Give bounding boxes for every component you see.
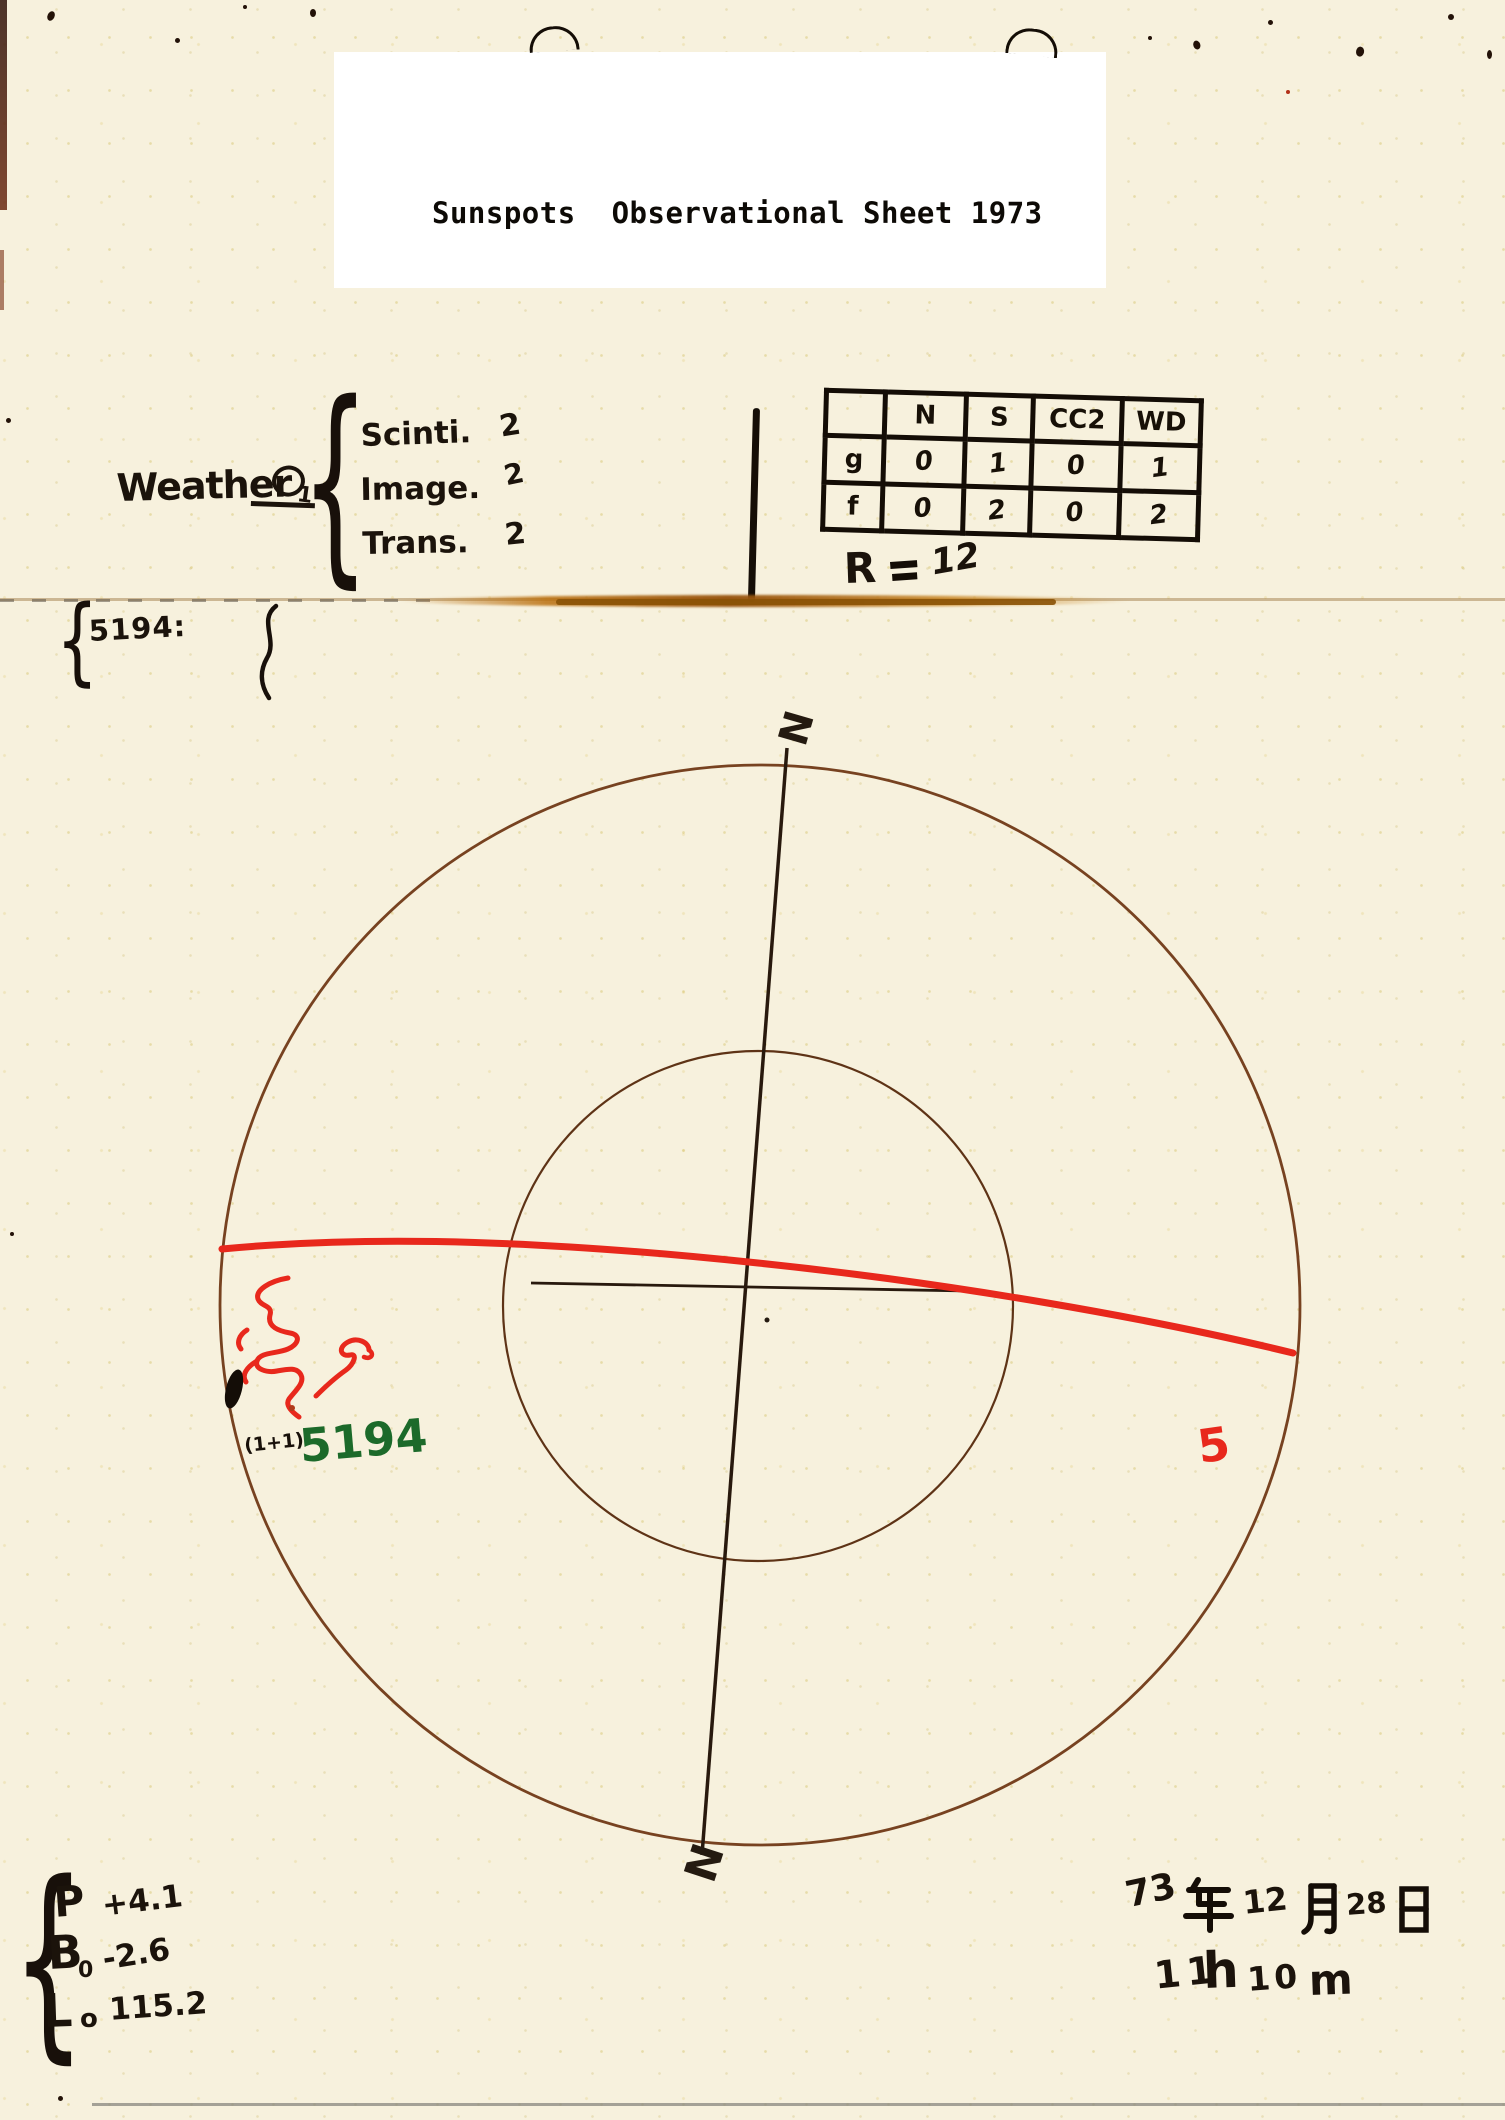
date-month: 12 [1241, 1879, 1289, 1921]
time-minute-unit: m [1308, 1954, 1353, 2004]
small-red-dot [289, 1405, 295, 1411]
horizontal-axis-line [531, 1283, 969, 1291]
kanji-year-icon [1182, 1874, 1234, 1934]
b0-subscript: 0 [78, 1958, 93, 1983]
sunspot-sketch-left [257, 1278, 302, 1417]
p-label: P [52, 1876, 86, 1927]
center-dot [765, 1318, 770, 1323]
l0-value: 115.2 [108, 1985, 208, 2028]
sunspot-sketch-right [316, 1340, 369, 1396]
polar-axis-line [702, 748, 787, 1855]
sunspot-sketch-loop [364, 1350, 372, 1358]
group-count-label: (1+1) [243, 1429, 305, 1457]
north-label: N [770, 706, 823, 751]
group-number-label: 5194 [297, 1408, 429, 1473]
date-day: 28 [1345, 1885, 1388, 1922]
sheet-page: Sunspots Observational Sheet 1973 Weathe… [0, 0, 1505, 2120]
time-minute: 10 [1246, 1956, 1303, 1999]
l0-label: L [42, 1983, 73, 2038]
solar-disk-drawing: N N (1+1) 5194 5 [0, 0, 1505, 2120]
kanji-month-icon [1301, 1880, 1343, 1938]
l0-subscript: o [80, 2004, 98, 2034]
equator-red-line [222, 1241, 1293, 1353]
kanji-day-icon [1394, 1884, 1434, 1936]
outer-disk-circle [220, 765, 1300, 1845]
time-hour-unit: h [1202, 1941, 1240, 2000]
south-mark-label: 5 [1194, 1416, 1233, 1474]
